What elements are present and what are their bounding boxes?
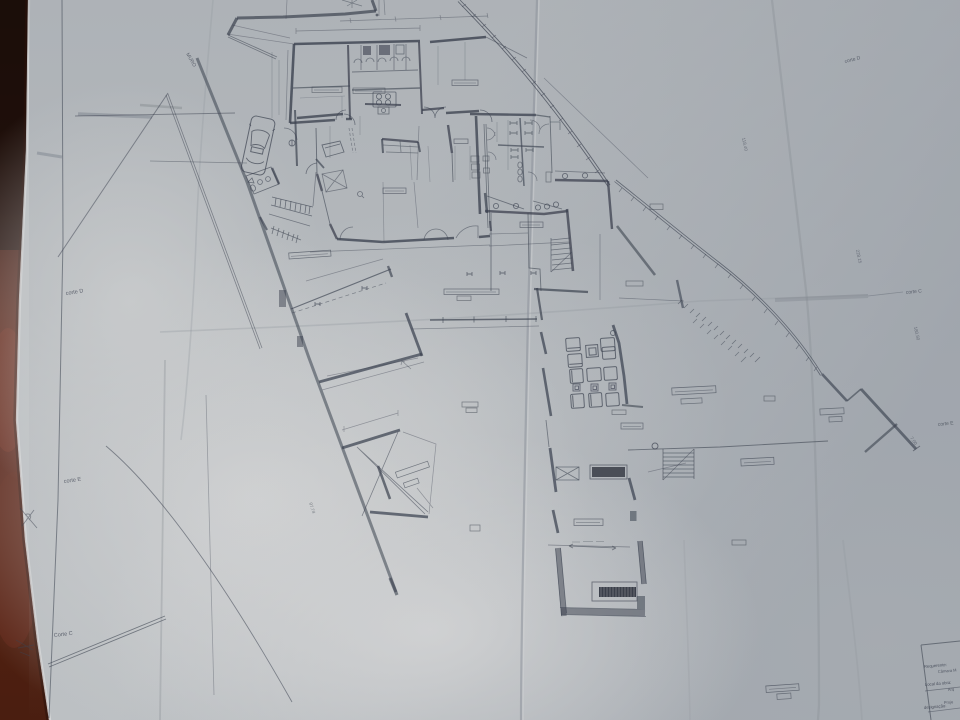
svg-text:Arq: Arq [948, 686, 955, 692]
